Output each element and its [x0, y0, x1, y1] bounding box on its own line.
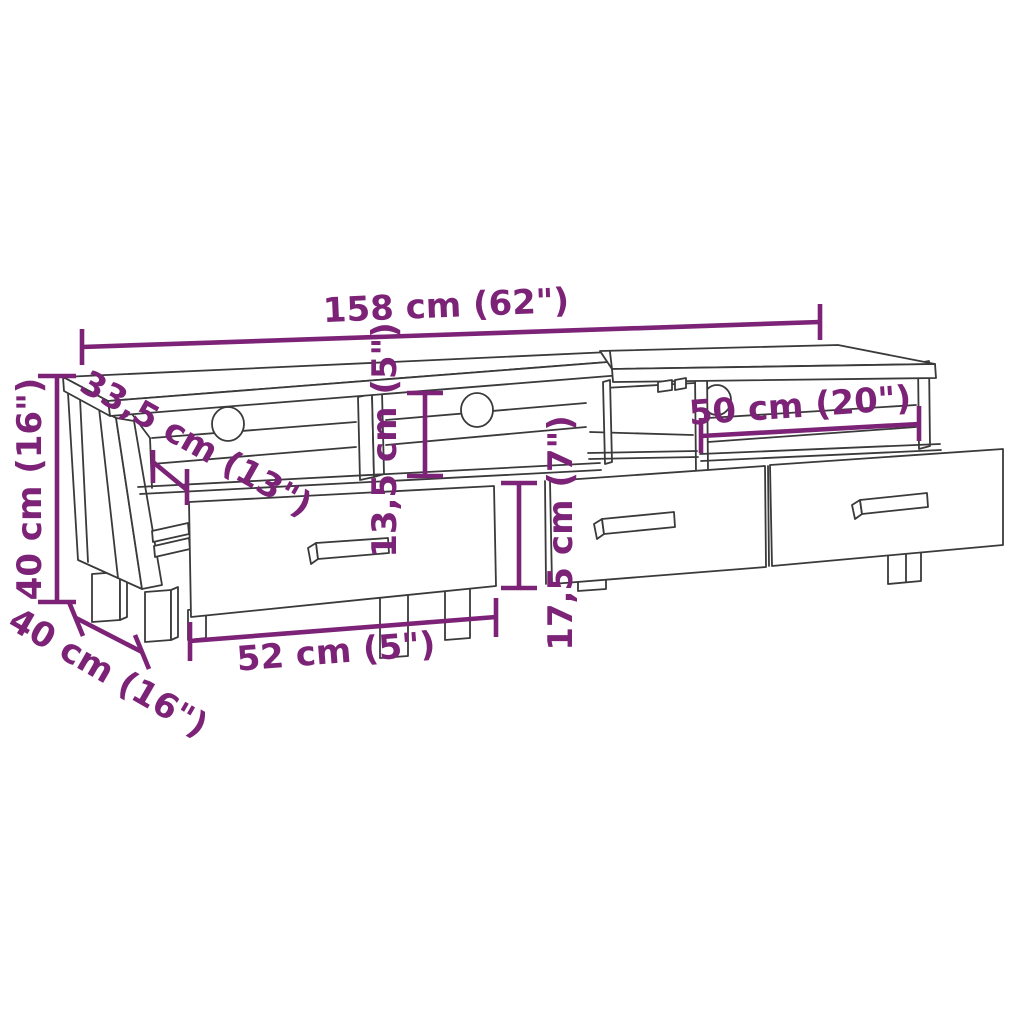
cable-hole-middle [461, 393, 493, 427]
dimension-drawer-height [501, 483, 537, 588]
label-drawer-width: 52 cm (5") [235, 624, 437, 679]
label-drawer-height: 17,5 cm (7") [541, 415, 581, 651]
diagram-canvas: 158 cm (62") 40 cm (16") 33,5 cm (13") 1… [0, 0, 1024, 1024]
label-compartment-height: 13,5 cm (5") [365, 322, 405, 558]
label-depth: 40 cm (16") [2, 600, 215, 746]
label-height: 40 cm (16") [10, 378, 50, 601]
drawer-runners [152, 523, 190, 557]
dimension-diagram: 158 cm (62") 40 cm (16") 33,5 cm (13") 1… [0, 0, 1024, 1024]
drawers [189, 449, 1003, 617]
dimension-compartment-height [407, 393, 443, 476]
label-total-width: 158 cm (62") [322, 281, 570, 331]
